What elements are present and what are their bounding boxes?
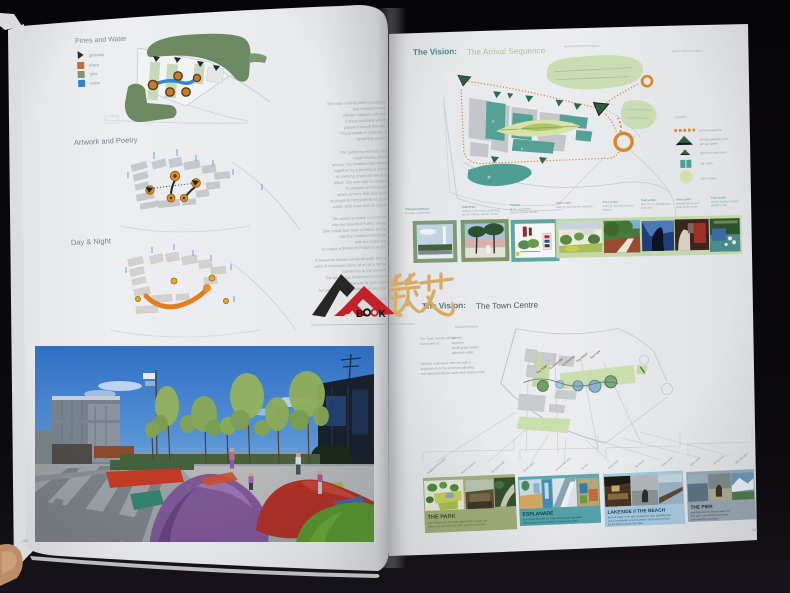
svg-text:K: K [379, 309, 387, 320]
svg-text:181: 181 [752, 528, 758, 532]
svg-text:180: 180 [22, 539, 28, 543]
svg-text:B: B [356, 309, 363, 320]
